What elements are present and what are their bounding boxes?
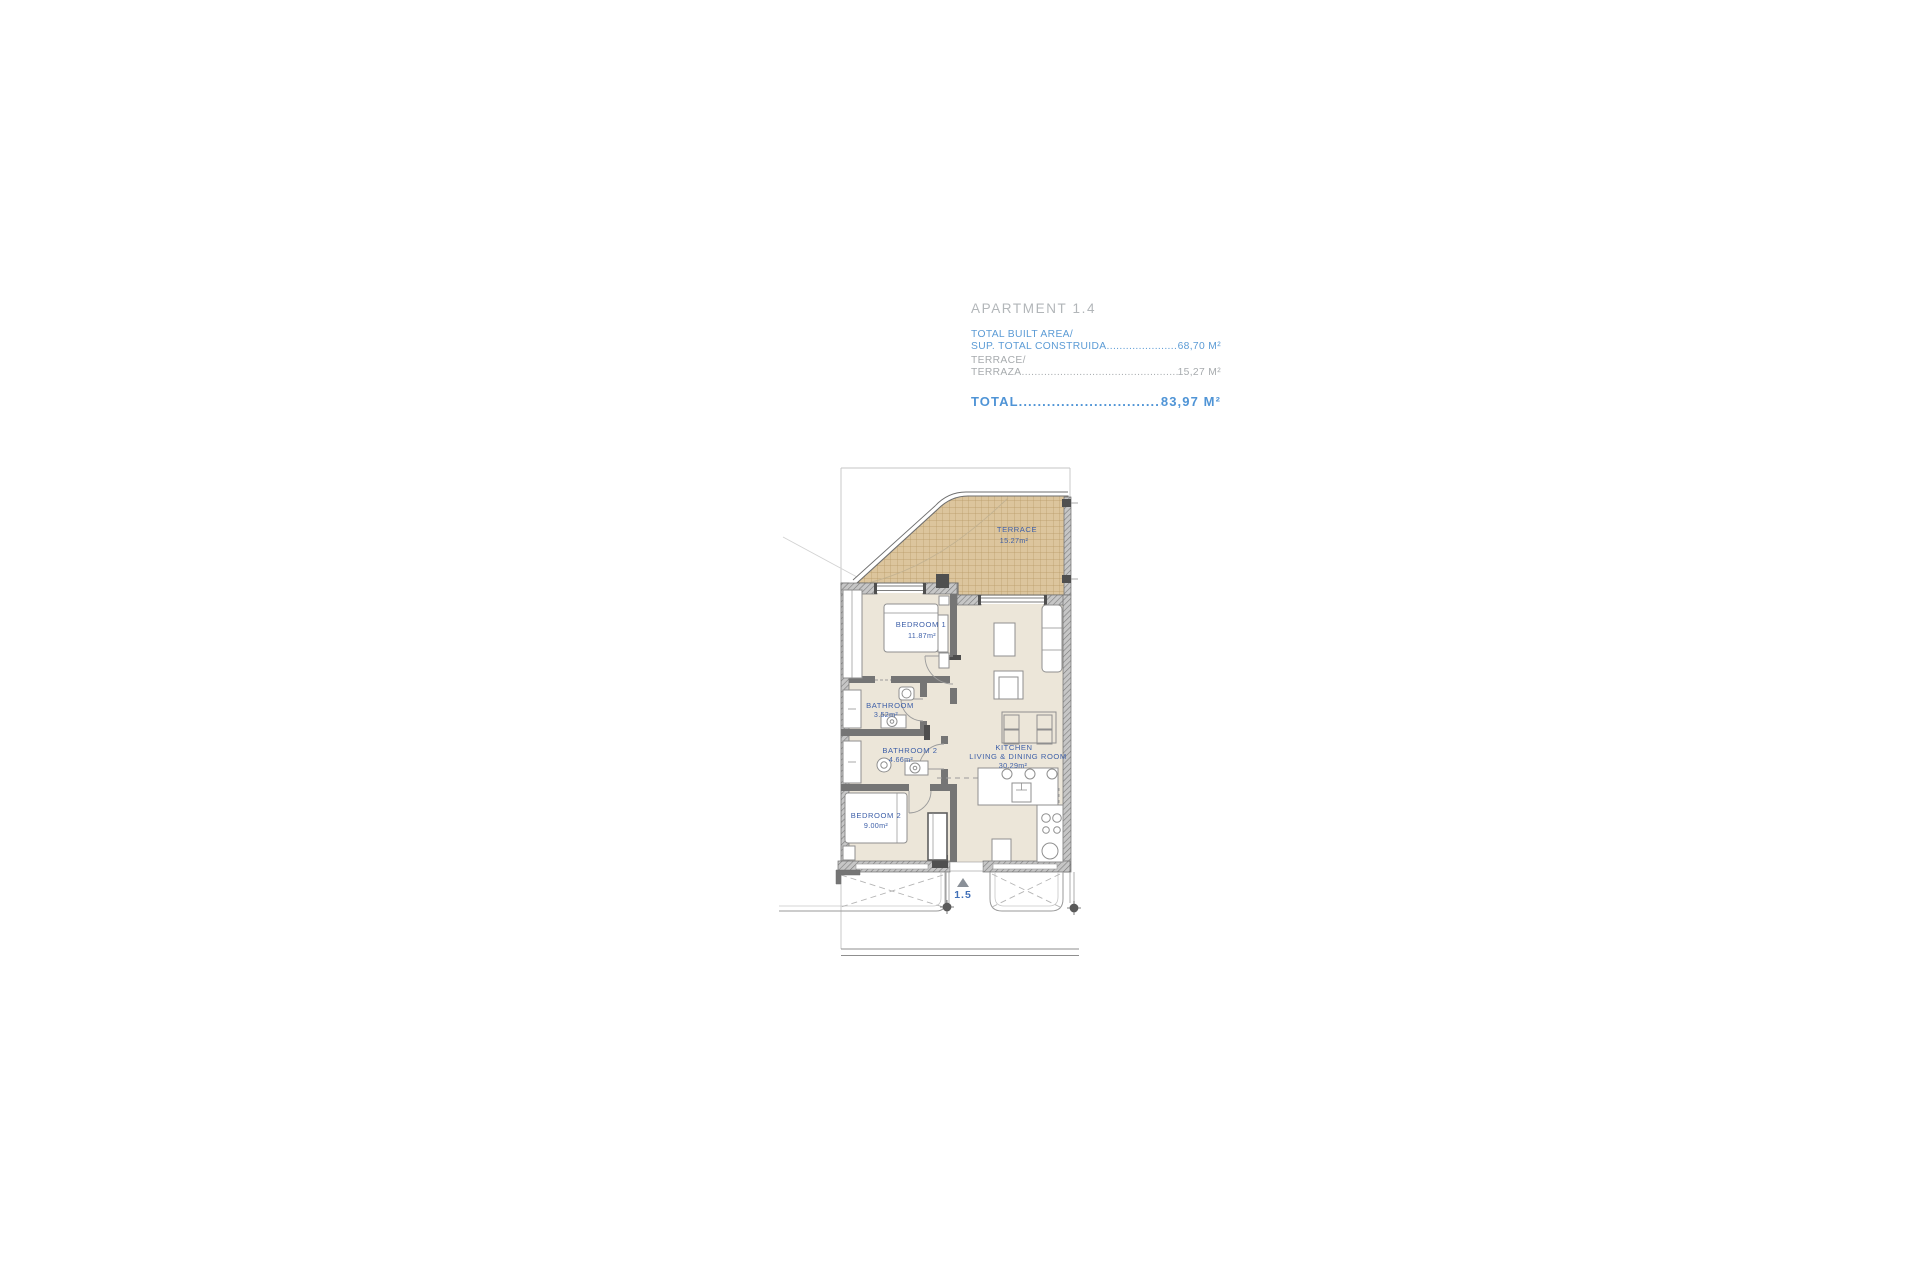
terrace-anchor-bottom — [1062, 575, 1071, 583]
bathroom1-label: BATHROOM — [866, 701, 914, 710]
kitchen-label-line1: KITCHEN — [995, 743, 1032, 752]
page: { "header": { "apartment_title": "APARTM… — [0, 0, 1920, 1280]
bathroom2-area: 4.66m² — [889, 755, 913, 764]
level-marker-arrow — [957, 878, 969, 887]
level-marker-label: 1.5 — [954, 889, 972, 901]
balconies — [779, 870, 1081, 915]
wall-junction-top — [936, 574, 949, 588]
bedroom1-label: BEDROOM 1 — [896, 620, 947, 629]
terrace-label: TERRACE — [997, 525, 1037, 534]
bathroom1-area: 3.52m² — [874, 710, 898, 719]
bedroom2-label: BEDROOM 2 — [851, 811, 902, 820]
kitchen-area: 30.29m² — [999, 761, 1028, 770]
section-lines — [841, 949, 1079, 956]
kitchen-label-line2: LIVING & DINING ROOM — [969, 752, 1067, 761]
bedroom2-area: 9.00m² — [864, 821, 888, 830]
bathroom2-label: BATHROOM 2 — [882, 746, 937, 755]
terrace-area: 15.27m² — [1000, 536, 1029, 545]
floorplan-drawing: 1.5 TERRACE 15.27m² BEDROOM 1 11.87m² BA… — [0, 0, 1920, 1280]
terrace-anchor-top — [1062, 499, 1071, 507]
bedroom1-area: 11.87m² — [908, 631, 936, 640]
terrace — [853, 492, 1078, 595]
level-marker: 1.5 — [954, 878, 972, 901]
